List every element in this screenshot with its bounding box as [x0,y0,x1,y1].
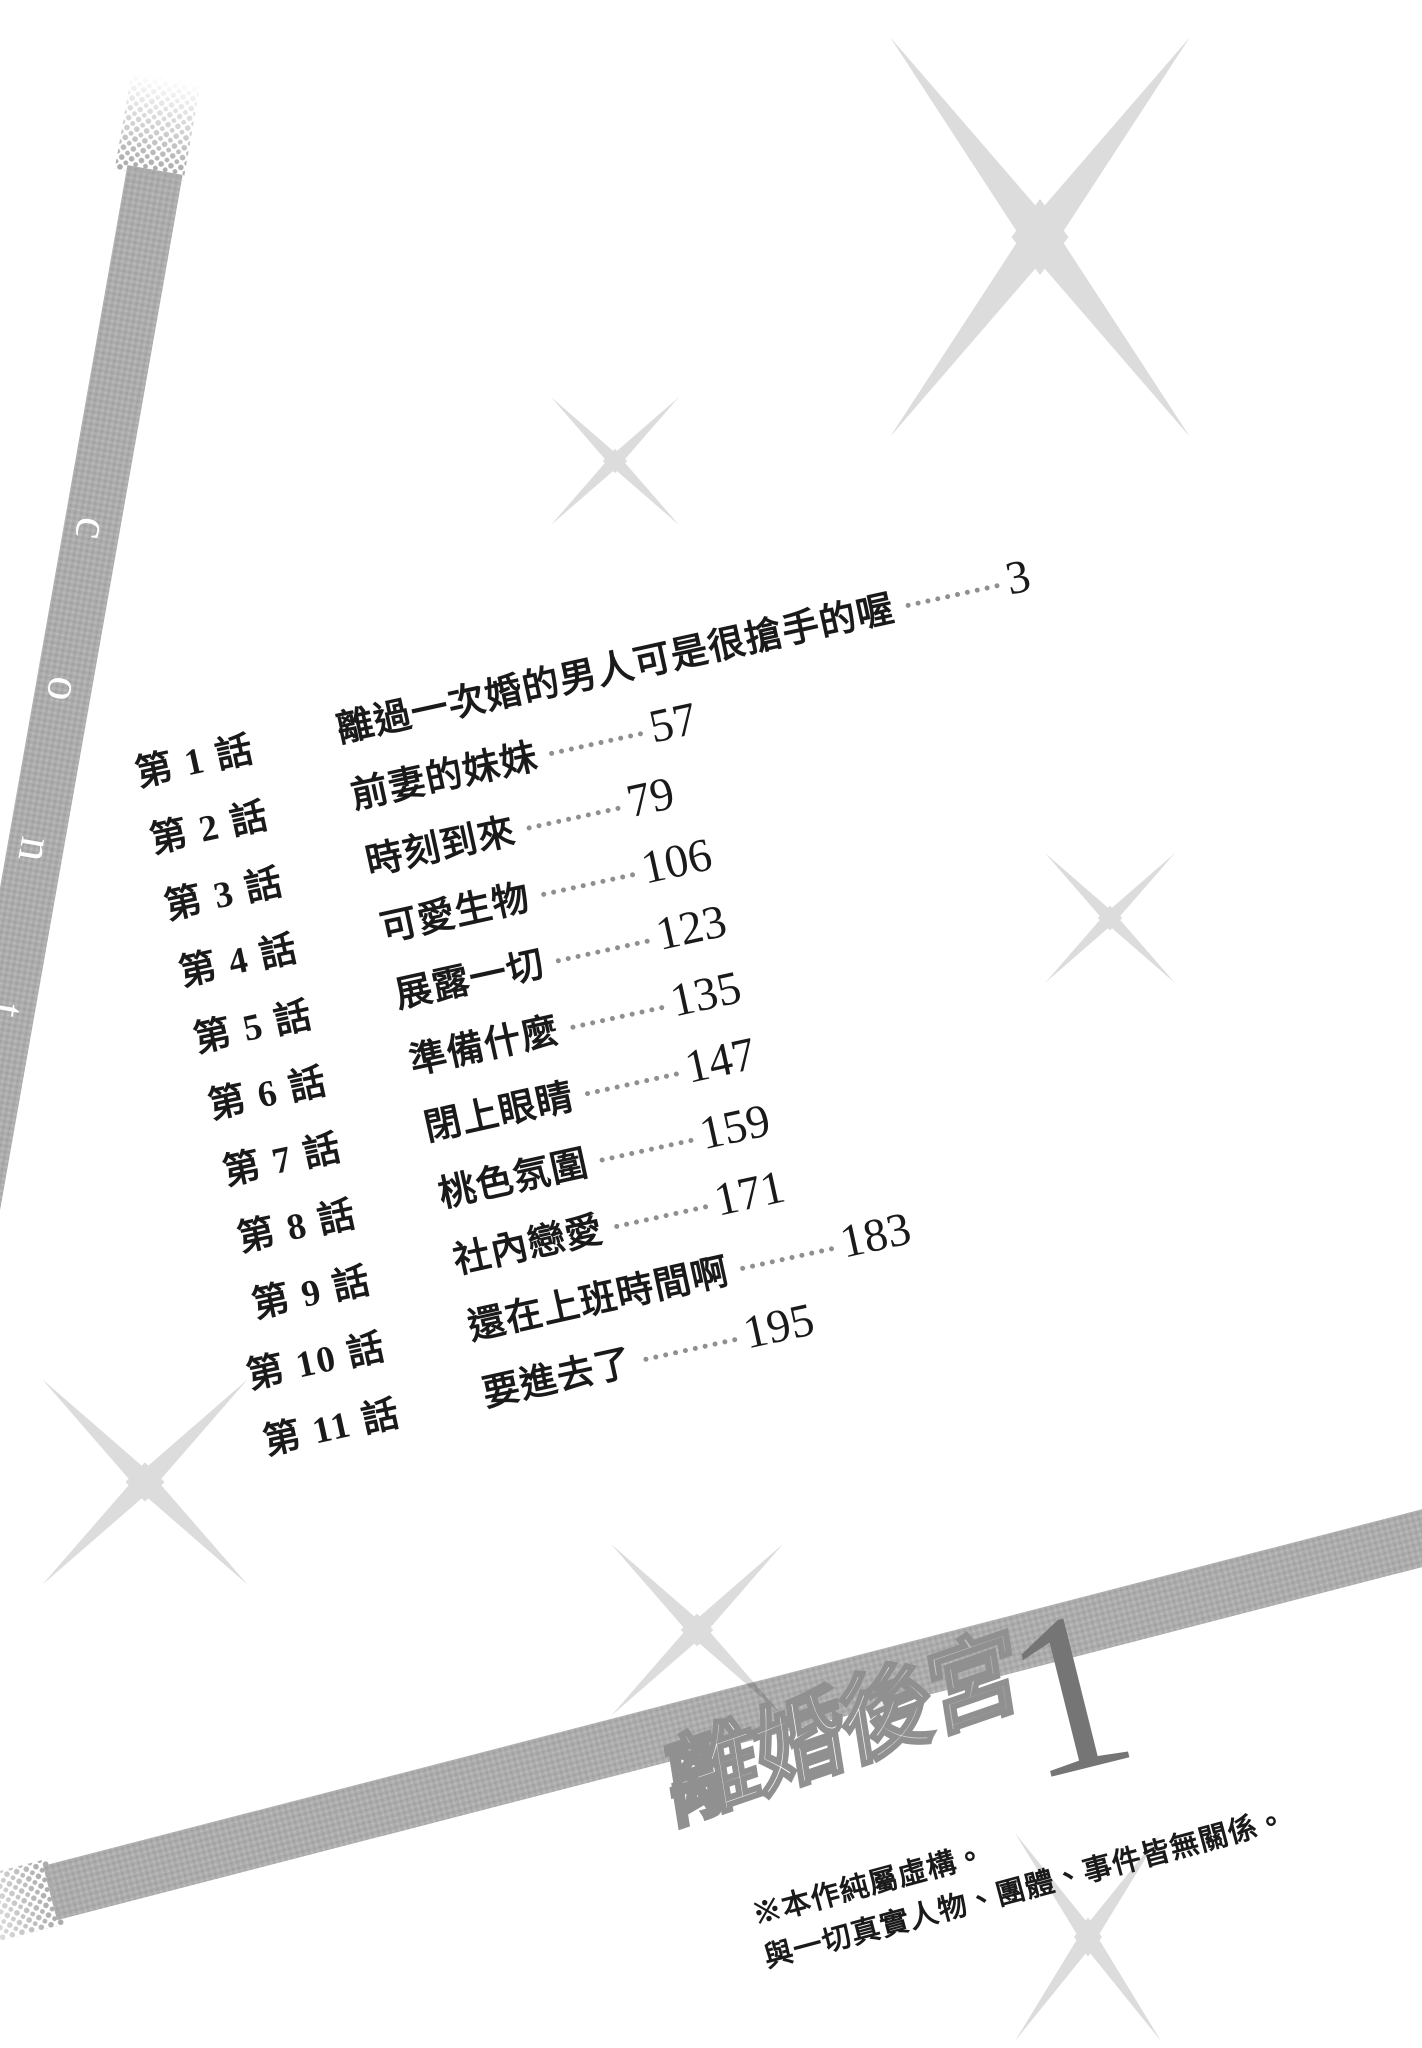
sparkle-cross-icon [551,397,679,525]
sparkle-cross-icon [42,1379,248,1585]
dotted-leader-icon [905,582,1000,607]
dotted-leader-icon [541,871,636,896]
dotted-leader-icon [526,805,621,830]
dotted-leader-icon [555,938,650,963]
page-canvas: contents 第 1 話離過一次婚的男人可是很搶手的喔3第 2 話前妻的妹妹… [0,0,1422,2048]
dotted-leader-icon [599,1137,694,1162]
page-number: 147 [680,1026,760,1094]
contents-letter: n [7,818,64,881]
dotted-leader-icon [549,730,644,755]
dotted-leader-icon [584,1071,679,1096]
dotted-leader-icon [570,1004,665,1029]
sparkle-cross-icon [890,37,1190,437]
page-number: 3 [1001,548,1036,606]
page-number: 79 [622,766,679,829]
page-number: 57 [644,691,701,754]
contents-letter: o [35,657,92,720]
page-number: 135 [665,960,745,1028]
page-number: 183 [835,1201,915,1269]
contents-letter: c [63,497,120,560]
page-number: 159 [695,1093,775,1161]
page-number: 106 [636,827,716,895]
dotted-leader-icon [740,1245,835,1270]
dotted-leader-icon [614,1203,709,1228]
page-number: 195 [738,1292,818,1360]
contents-letter: t [0,978,35,1041]
page-number: 171 [709,1159,789,1227]
series-logo: 離婚後宮 [660,1622,1023,1837]
contents-letter: e [0,1139,7,1202]
page-number: 123 [651,894,731,962]
dotted-leader-icon [643,1336,738,1361]
contents-band: contents [0,165,183,2048]
disclaimer-text: ※本作純屬虛構。 與一切真實人物、團體、事件皆無關係。 [748,1756,1292,1980]
table-of-contents: 第 1 話離過一次婚的男人可是很搶手的喔3第 2 話前妻的妹妹57第 3 話時刻… [80,503,1354,1478]
